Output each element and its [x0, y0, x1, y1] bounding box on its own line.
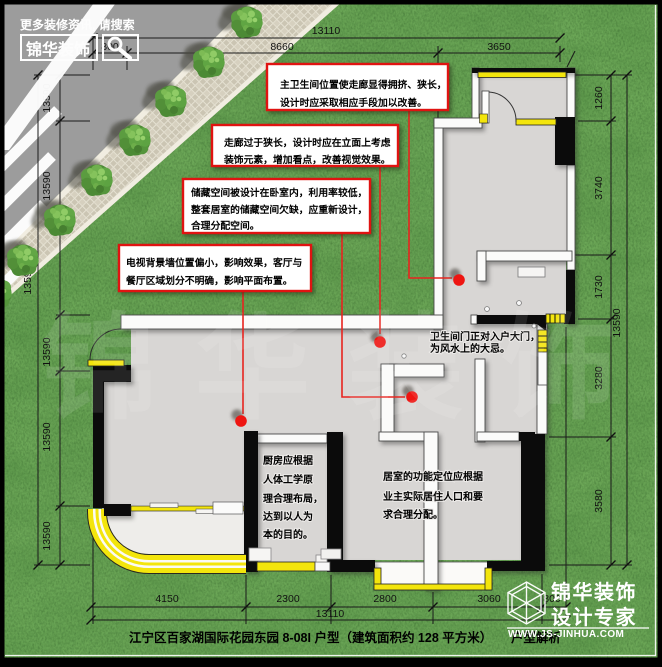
- svg-text:13110: 13110: [316, 608, 345, 620]
- svg-text:2800: 2800: [373, 593, 397, 605]
- svg-text:餐厅区域划分不明确，影响平面布置。: 餐厅区域划分不明确，影响平面布置。: [125, 274, 293, 287]
- svg-text:江宁区百家湖国际花园东园 8-08I 户型（建筑面积约 12: 江宁区百家湖国际花园东园 8-08I 户型（建筑面积约 128 平方米）: [129, 630, 492, 645]
- svg-text:1730: 1730: [593, 275, 605, 299]
- svg-text:13590: 13590: [41, 521, 53, 550]
- svg-text:达到以人为: 达到以人为: [263, 510, 313, 523]
- svg-text:3060: 3060: [477, 593, 501, 605]
- svg-text:1260: 1260: [593, 86, 605, 110]
- svg-text:整套居室的储藏空间欠缺，应重新设计，: 整套居室的储藏空间欠缺，应重新设计，: [190, 203, 367, 216]
- svg-text:人体工学原: 人体工学原: [263, 473, 313, 486]
- svg-text:电视背景墙位置偏小，影响效果，客厅与: 电视背景墙位置偏小，影响效果，客厅与: [126, 256, 302, 269]
- svg-text:2300: 2300: [276, 593, 300, 605]
- svg-text:设计时应采取相应手段加以改善。: 设计时应采取相应手段加以改善。: [280, 96, 427, 109]
- svg-text:锦华装饰: 锦华装饰: [551, 580, 637, 604]
- svg-text:WWW.JS-JINHUA.COM: WWW.JS-JINHUA.COM: [508, 629, 624, 640]
- svg-text:走廊过于狭长，设计时应在立面上考虑: 走廊过于狭长，设计时应在立面上考虑: [224, 136, 391, 149]
- svg-text:4150: 4150: [155, 593, 179, 605]
- svg-text:8660: 8660: [270, 41, 294, 53]
- svg-text:本的目的。: 本的目的。: [263, 528, 313, 541]
- svg-text:设计专家: 设计专家: [551, 605, 637, 629]
- svg-text:厨房应根据: 厨房应根据: [263, 454, 313, 467]
- svg-text:锦华装饰: 锦华装饰: [42, 305, 654, 433]
- svg-text:理合理布局，: 理合理布局，: [263, 492, 323, 505]
- svg-text:13590: 13590: [41, 171, 53, 200]
- svg-text:3580: 3580: [593, 489, 605, 513]
- svg-text:求合理分配。: 求合理分配。: [383, 508, 443, 521]
- svg-text:3650: 3650: [487, 41, 511, 53]
- svg-text:储藏空间被设计在卧室内，利用率较低，: 储藏空间被设计在卧室内，利用率较低，: [191, 186, 367, 199]
- svg-text:业主实际居住人口和要: 业主实际居住人口和要: [383, 490, 483, 503]
- svg-text:13110: 13110: [312, 25, 341, 37]
- svg-text:居室的功能定位应根据: 居室的功能定位应根据: [383, 470, 483, 483]
- svg-text:合理分配空间。: 合理分配空间。: [190, 219, 260, 232]
- svg-text:3740: 3740: [593, 176, 605, 200]
- svg-text:主卫生间位置使走廊显得拥挤、狭长，: 主卫生间位置使走廊显得拥挤、狭长，: [280, 78, 447, 91]
- svg-text:装饰元素，增加看点，改善视觉效果。: 装饰元素，增加看点，改善视觉效果。: [223, 153, 391, 166]
